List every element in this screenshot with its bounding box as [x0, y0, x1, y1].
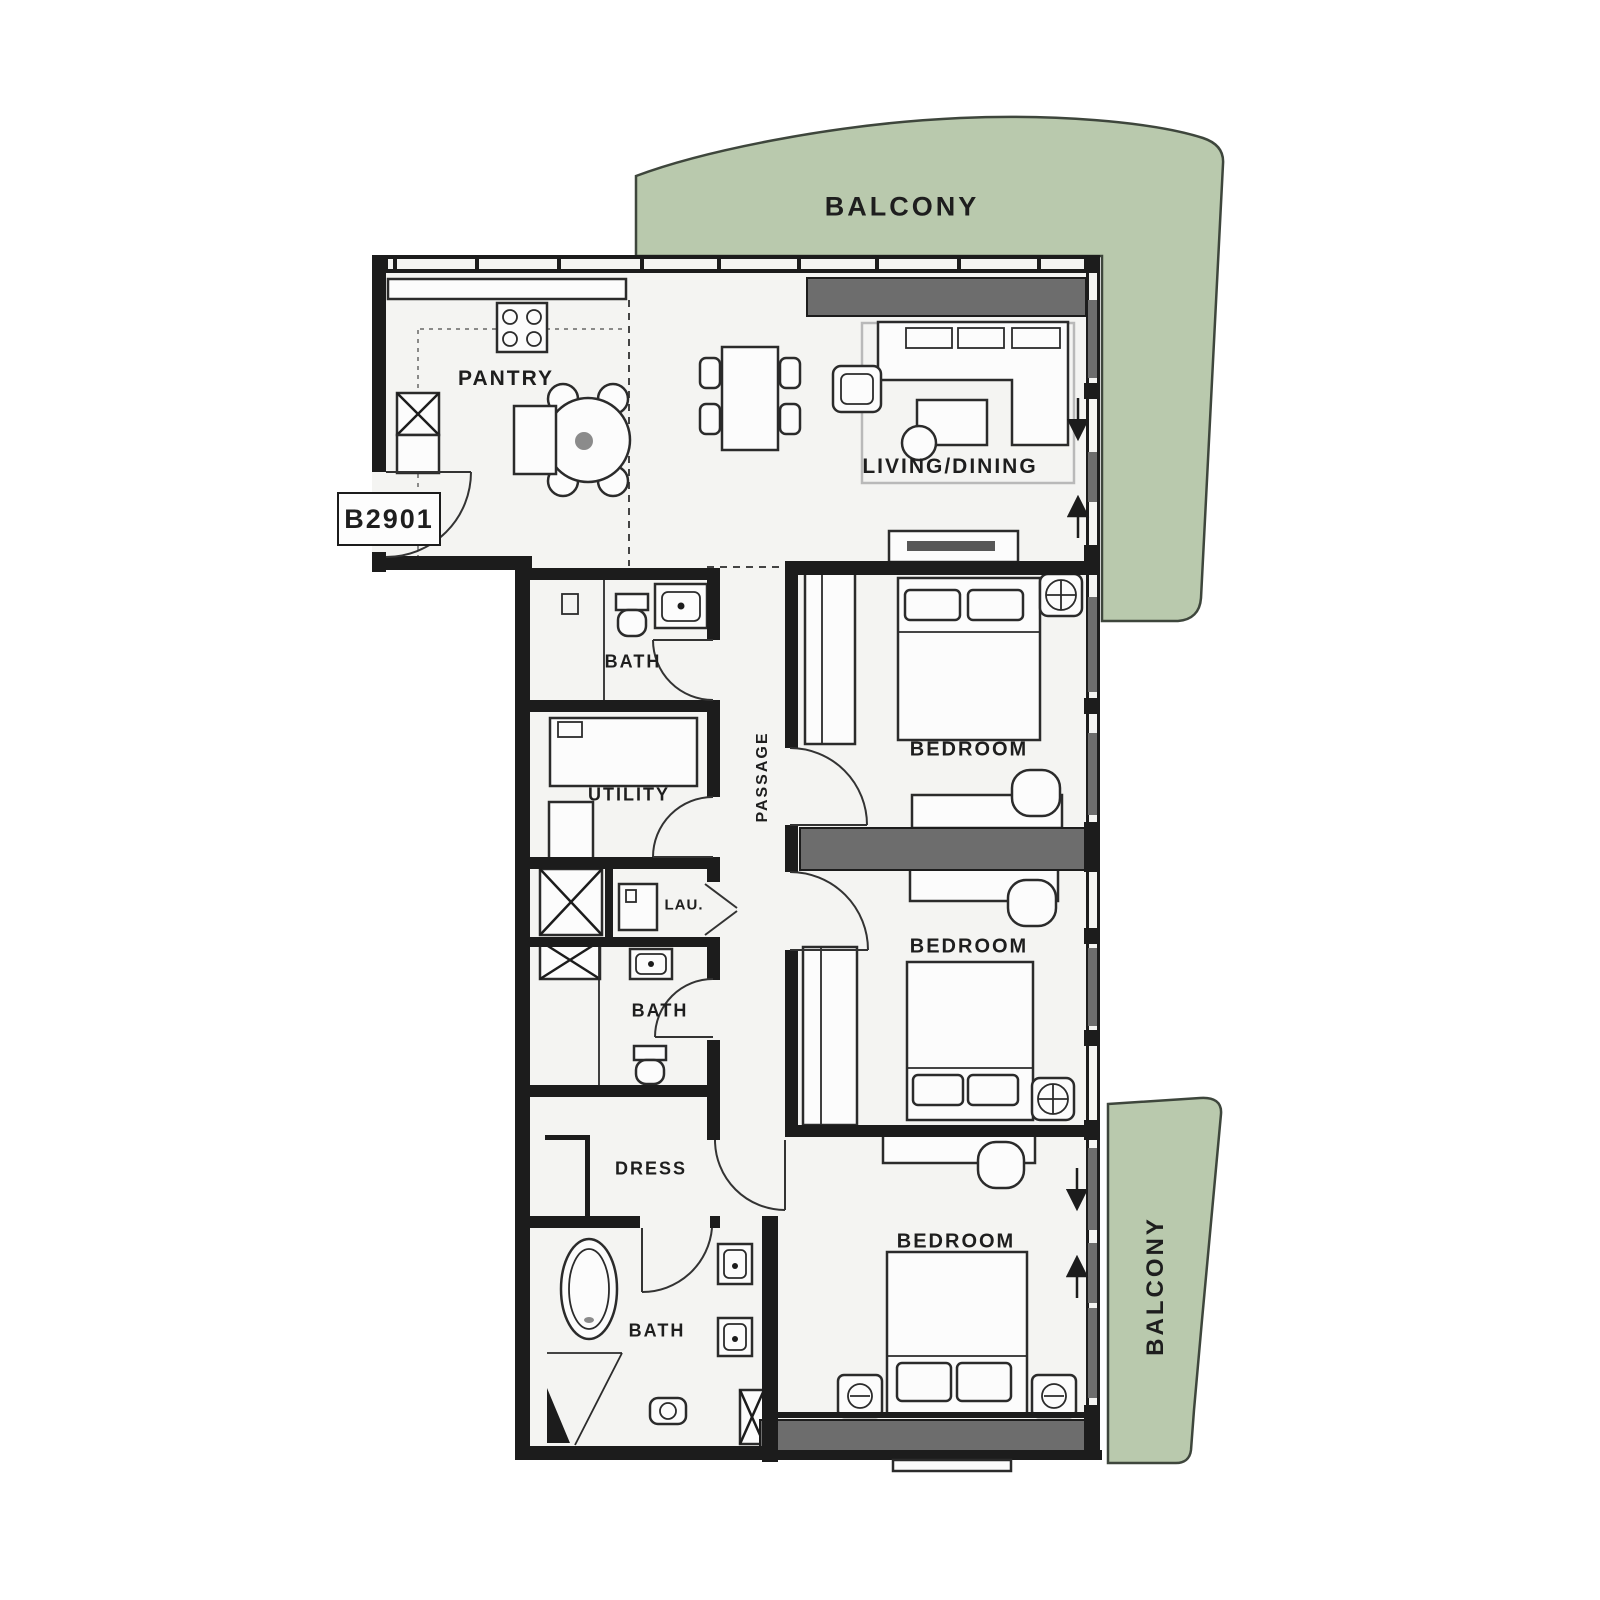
dining-chair — [780, 358, 800, 388]
bedroom3-label: BEDROOM — [897, 1231, 1015, 1254]
pantry-label: PANTRY — [458, 367, 554, 391]
utility-counter — [550, 718, 697, 786]
balcony-threshold — [893, 1460, 1011, 1471]
tv-icon — [907, 541, 995, 551]
unit-number-text: B2901 — [344, 504, 434, 535]
unit-number-tag: B2901 — [337, 492, 441, 546]
wardrobe-bar — [760, 1420, 1090, 1452]
floor-plan-drawing — [0, 0, 1600, 1600]
dining-chair — [700, 404, 720, 434]
pillow — [968, 1075, 1018, 1105]
kitchen-counter — [388, 279, 626, 299]
master-bath-label: BATH — [629, 1321, 686, 1342]
passage-label: PASSAGE — [754, 731, 772, 822]
dining-chair — [700, 358, 720, 388]
toilet-tank — [634, 1046, 666, 1060]
dining-chair — [780, 404, 800, 434]
dining-table — [722, 347, 778, 450]
washing-machine-icon — [619, 884, 657, 930]
toilet-icon — [650, 1398, 686, 1424]
pillow — [957, 1363, 1011, 1401]
desk-chair — [1008, 880, 1056, 926]
utility-label: UTILITY — [588, 785, 670, 806]
toilet-icon — [618, 610, 646, 636]
bath-top-label: BATH — [605, 652, 662, 673]
closet — [803, 947, 857, 1125]
pillow — [913, 1075, 963, 1105]
closet — [805, 572, 855, 744]
floor-plan-page: BALCONY BALCONY PANTRY LIVING/DINING BAT… — [0, 0, 1600, 1600]
cabinet — [397, 435, 439, 473]
pillow — [905, 590, 960, 620]
wall-cabinet — [807, 278, 1086, 316]
desk-chair — [978, 1142, 1024, 1188]
table-center — [575, 432, 593, 450]
wardrobe-bar — [800, 828, 1086, 870]
bath-mid-label: BATH — [632, 1001, 689, 1022]
toilet-tank — [616, 594, 648, 610]
balcony-top-label: BALCONY — [825, 192, 980, 223]
island-counter — [514, 406, 556, 474]
pillow — [897, 1363, 951, 1401]
balcony-right-label: BALCONY — [1142, 1216, 1170, 1356]
pillow — [968, 590, 1023, 620]
bedroom2-label: BEDROOM — [910, 936, 1028, 959]
toilet-icon — [636, 1060, 664, 1084]
bedroom1-label: BEDROOM — [910, 739, 1028, 762]
living-dining-label: LIVING/DINING — [862, 455, 1037, 479]
utility-cabinet — [549, 802, 593, 864]
desk-chair — [1012, 770, 1060, 816]
dress-label: DRESS — [615, 1159, 687, 1180]
laundry-label: LAU. — [665, 897, 704, 914]
